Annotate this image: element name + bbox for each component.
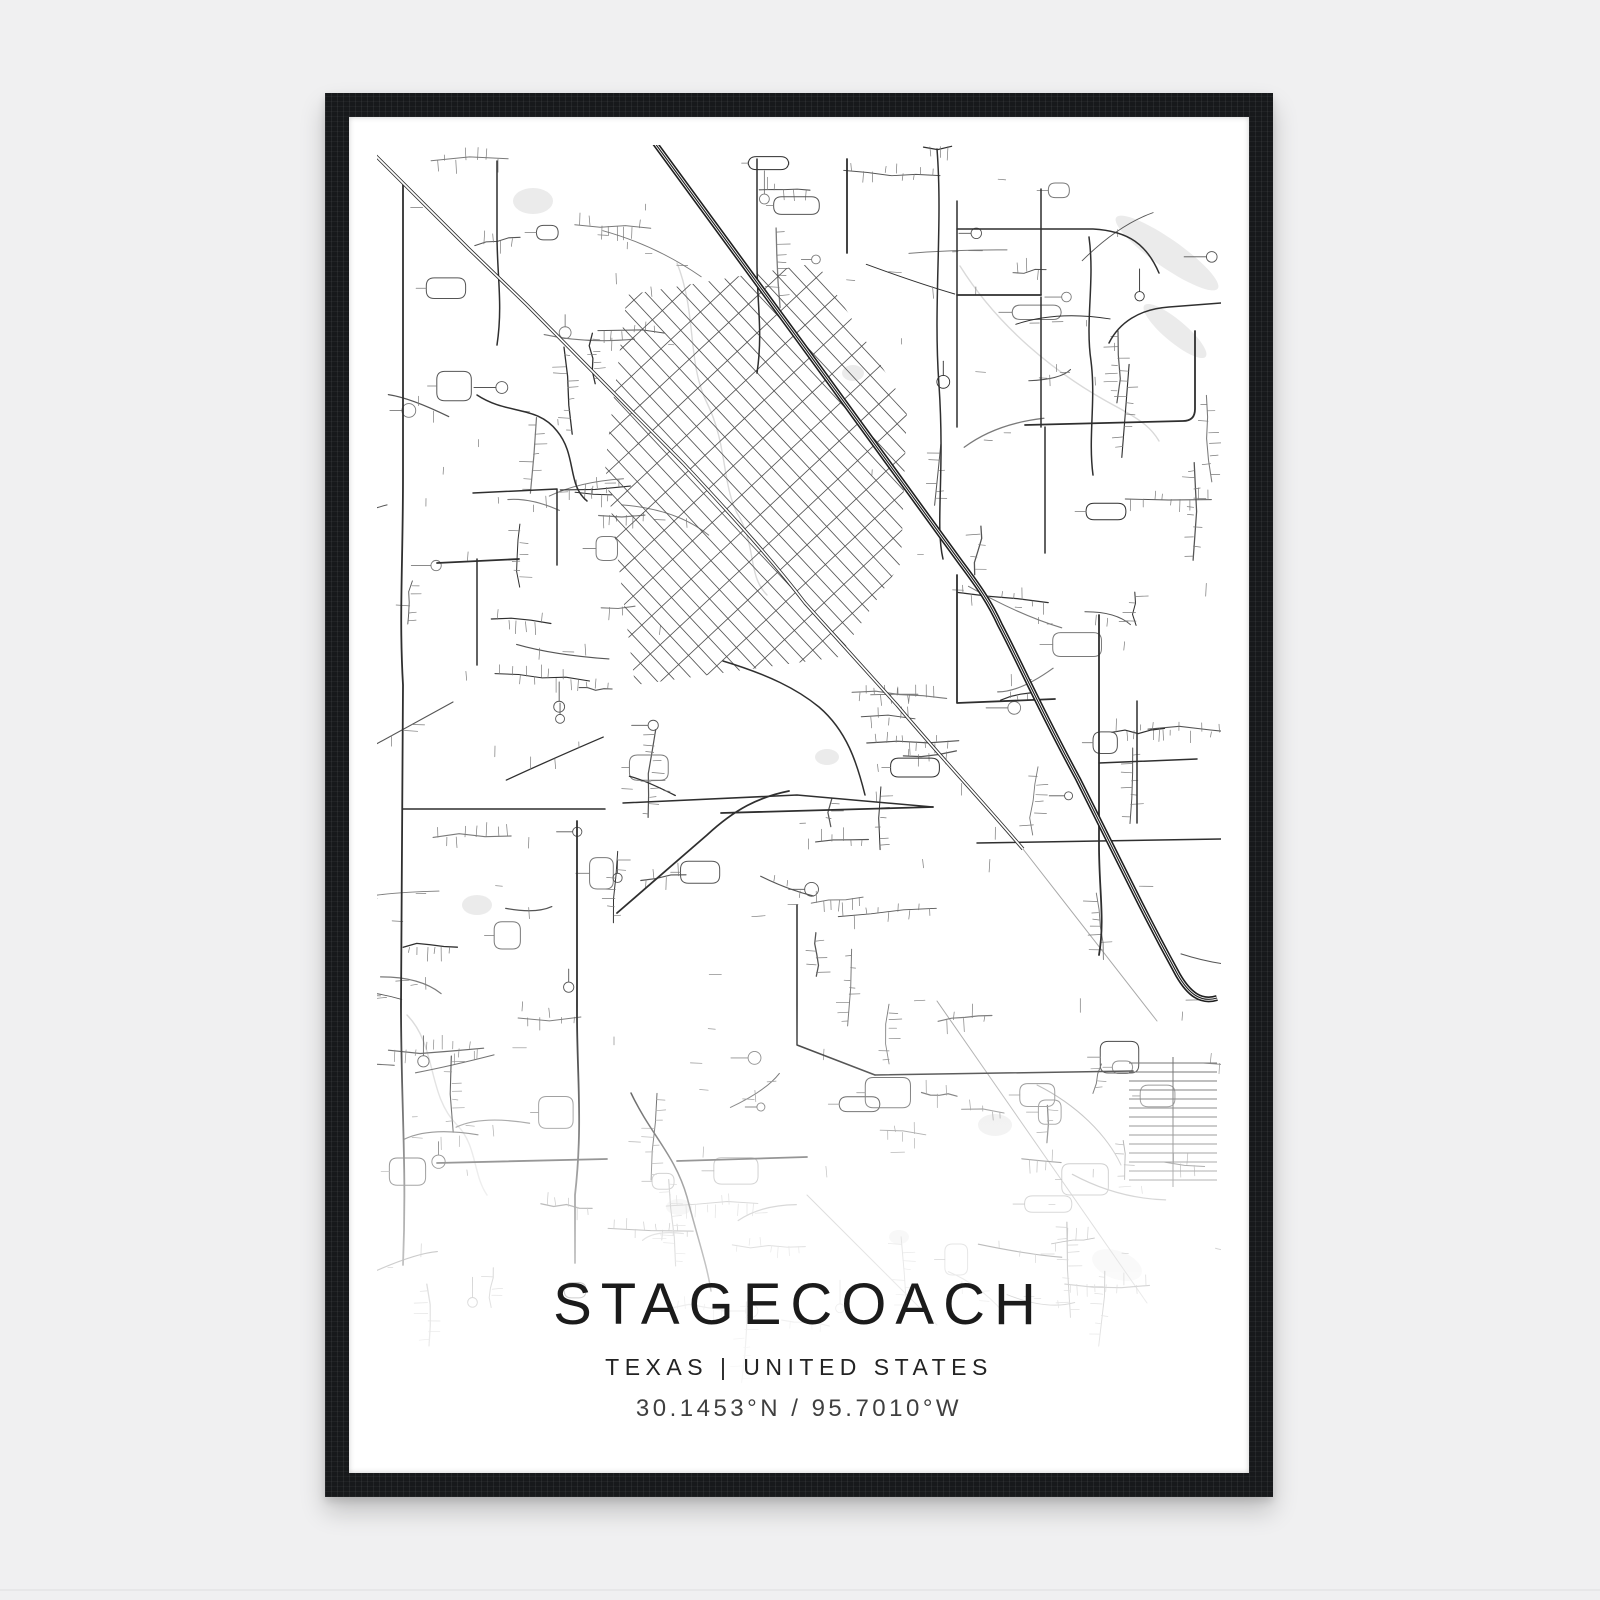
poster-subtitle: TEXAS | UNITED STATES (349, 1354, 1249, 1381)
wall-background: { "poster": { "title": "STAGECOACH", "su… (0, 0, 1600, 1600)
caption-block: STAGECOACH TEXAS | UNITED STATES 30.1453… (349, 1272, 1249, 1423)
poster-title: STAGECOACH (349, 1272, 1249, 1338)
poster-mat: STAGECOACH TEXAS | UNITED STATES 30.1453… (349, 117, 1249, 1473)
map-graphic (377, 145, 1221, 1385)
poster-coordinates: 30.1453°N / 95.7010°W (349, 1395, 1249, 1423)
framed-map-poster: STAGECOACH TEXAS | UNITED STATES 30.1453… (325, 93, 1273, 1497)
floor-seam (0, 1589, 1600, 1591)
